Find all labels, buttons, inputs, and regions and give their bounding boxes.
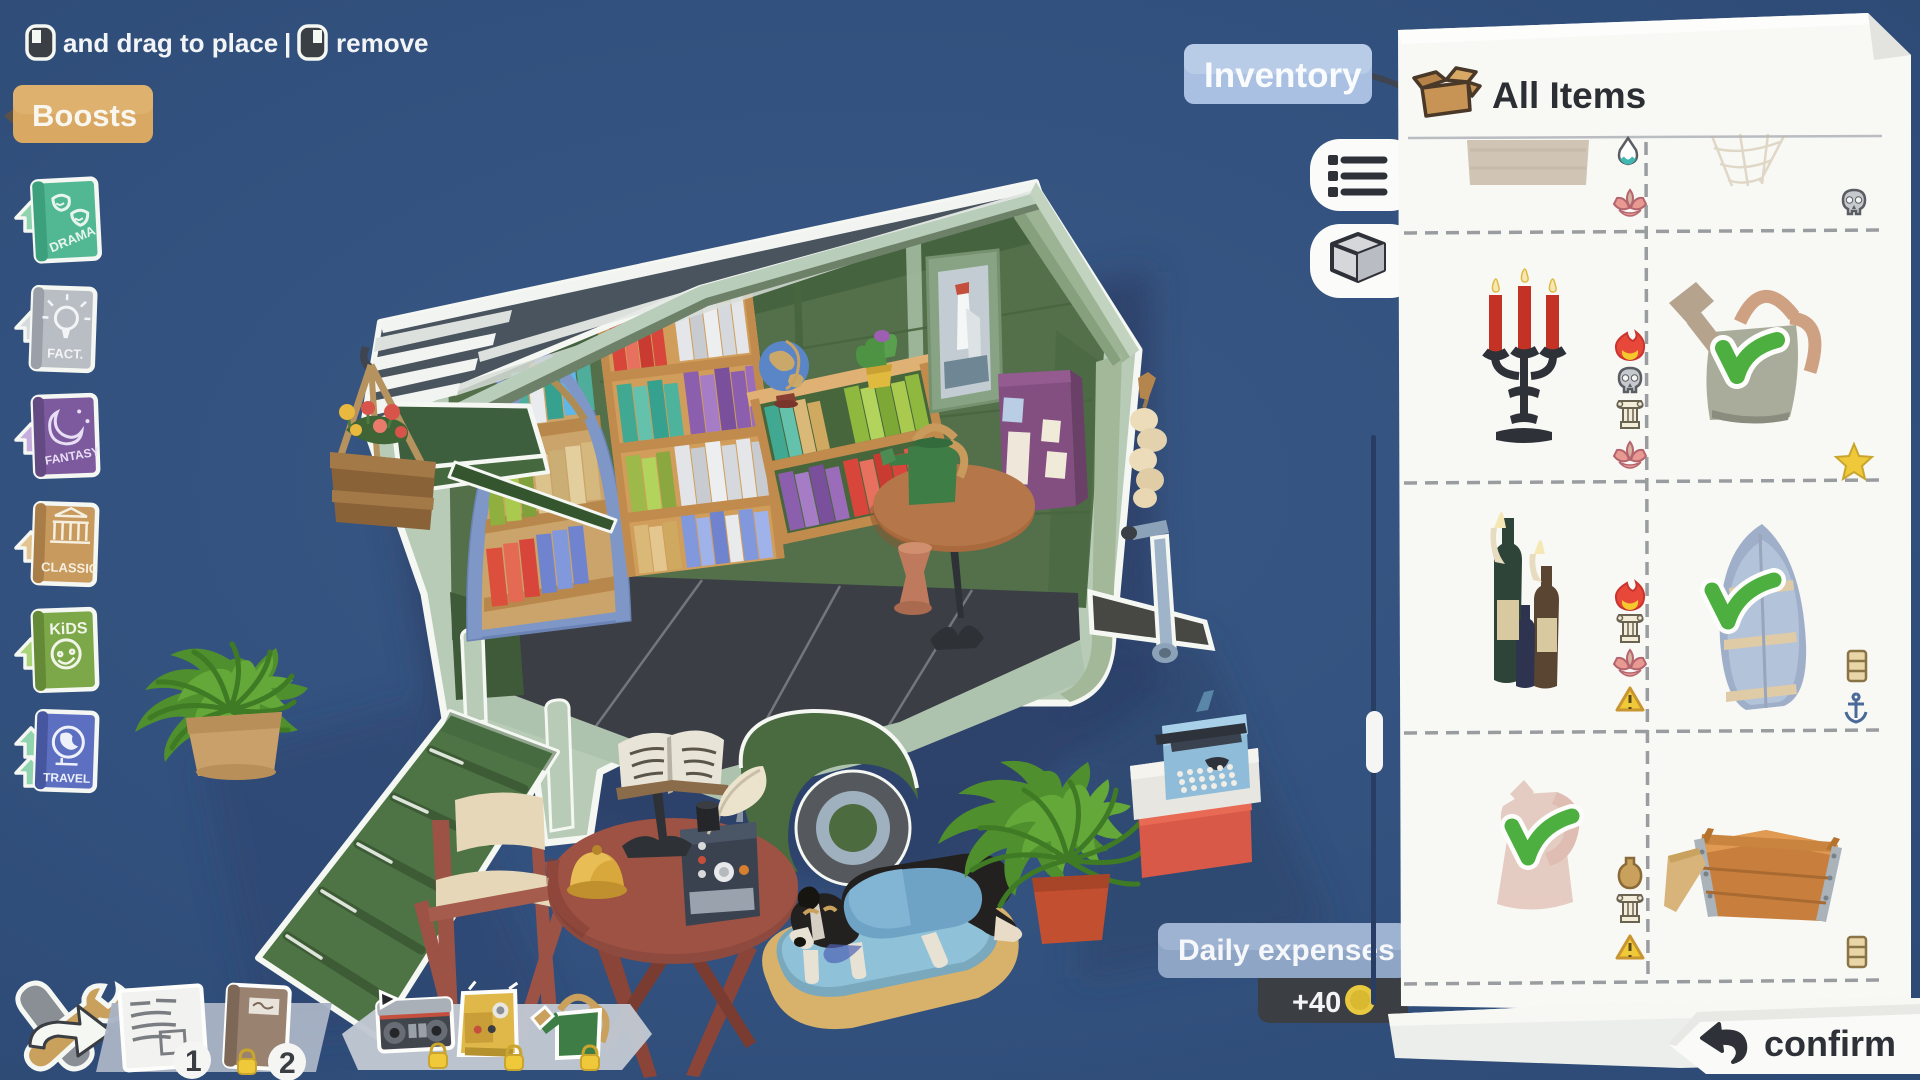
svg-text:+40: +40 — [1292, 987, 1341, 1019]
svg-text:Daily expenses: Daily expenses — [1178, 934, 1395, 967]
svg-text:KiDS: KiDS — [49, 620, 88, 638]
svg-text:All Items: All Items — [1492, 75, 1646, 116]
svg-text:and drag to place: and drag to place — [63, 28, 278, 58]
svg-text:2: 2 — [279, 1047, 296, 1080]
svg-text:Boosts: Boosts — [32, 98, 137, 133]
svg-text:CLASSIC: CLASSIC — [41, 559, 99, 576]
svg-text:remove: remove — [336, 28, 429, 58]
svg-text:confirm: confirm — [1764, 1023, 1896, 1064]
svg-text:FACT.: FACT. — [47, 346, 84, 362]
svg-text:Inventory: Inventory — [1204, 56, 1362, 95]
svg-text:1: 1 — [185, 1045, 202, 1078]
svg-text:|: | — [284, 28, 291, 58]
svg-text:TRAVEL: TRAVEL — [43, 770, 91, 786]
